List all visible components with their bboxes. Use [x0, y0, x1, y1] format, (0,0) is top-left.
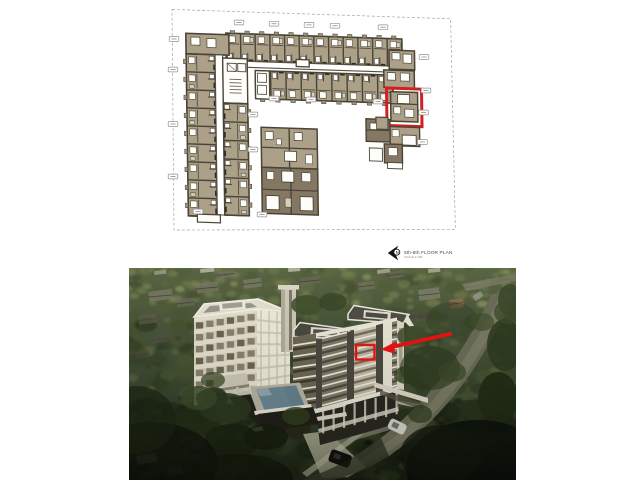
svg-text:SCALE 1:100: SCALE 1:100	[404, 255, 423, 259]
svg-text:N: N	[396, 250, 399, 255]
